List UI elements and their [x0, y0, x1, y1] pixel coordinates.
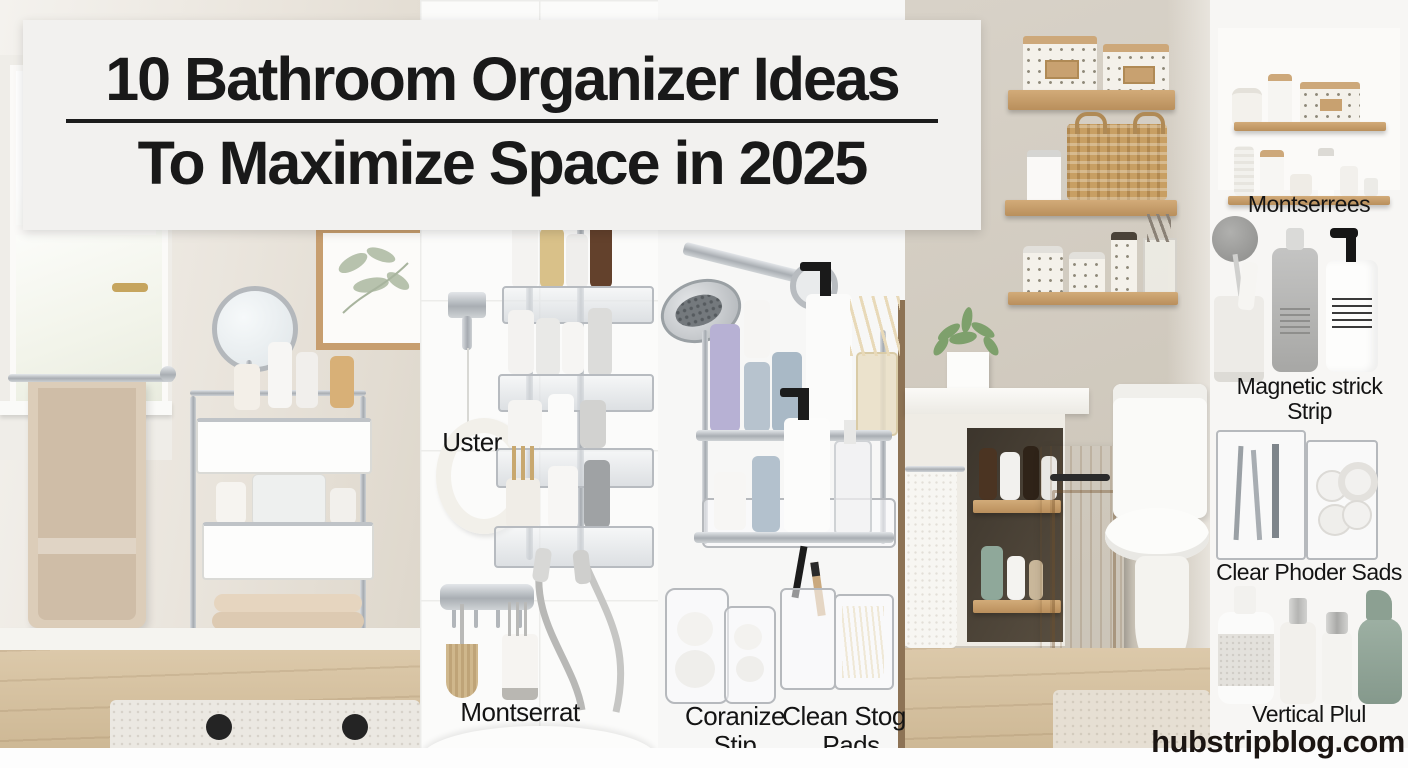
door-edge-wood [898, 300, 905, 768]
cart-wheel-left [206, 714, 232, 740]
rail-hook-2 [474, 610, 478, 628]
pump-sage [1366, 590, 1392, 620]
floating-shelf-3 [1008, 292, 1178, 305]
cotton-ball [677, 612, 713, 646]
towel-bar-endcap [160, 366, 176, 382]
floating-shelf-1 [1008, 90, 1175, 110]
bottle-gray-tall [1272, 248, 1318, 372]
pattern-bottle [1111, 232, 1137, 300]
pump-white [1234, 586, 1256, 614]
jar-wood-lid [1268, 74, 1292, 129]
eucalyptus-art [323, 233, 423, 333]
sidebar-shelf-1 [1234, 122, 1386, 131]
title-banner: 10 Bathroom Organizer Ideas To Maximize … [23, 20, 981, 230]
title-line-2: To Maximize Space in 2025 [23, 132, 981, 194]
box-label-plate [1123, 66, 1155, 84]
wall-hook [448, 292, 486, 318]
bottle-pump-white [784, 418, 830, 532]
cap-silver [1326, 612, 1348, 634]
swab-cup-clear [834, 594, 894, 690]
bottle-dark [979, 448, 997, 500]
product-sidebar: Montserrees Magnetic strick Strip [1210, 0, 1408, 768]
basket-handle [1075, 112, 1107, 134]
bottle-cap [1286, 228, 1304, 250]
hanging-towel-front [38, 388, 136, 620]
window-handle [112, 283, 148, 292]
brushes [508, 602, 532, 636]
jar-small [330, 488, 356, 524]
bottle-sage [981, 546, 1003, 600]
cotton-pad [1342, 500, 1372, 530]
towel-band [38, 538, 136, 554]
label-lines [1280, 306, 1310, 334]
jar-box [508, 400, 542, 448]
photo-label: Montserrat [430, 698, 610, 727]
bottle [548, 394, 574, 448]
glass-cup-swabs [856, 352, 898, 436]
cotton-swabs [842, 606, 884, 678]
brush-sticks [1147, 214, 1171, 242]
bottle-lavender [710, 324, 740, 432]
door-handle [1050, 474, 1110, 481]
toilet-seat [1105, 508, 1209, 562]
jar-white [714, 472, 746, 530]
bottle-white [296, 352, 318, 408]
baseboard [0, 628, 420, 650]
canister-white [1027, 150, 1061, 207]
glass-cup-brushes [1143, 238, 1177, 296]
bottle-white-pump [1000, 452, 1020, 500]
box-label-plate [1320, 99, 1342, 111]
rail-hook-3 [496, 610, 500, 628]
texture-band [1218, 634, 1274, 686]
bottle [512, 222, 538, 288]
cotton-pad-ring [1338, 462, 1378, 502]
toilet-tank [1113, 384, 1207, 518]
cabinet-towel [905, 472, 957, 648]
wall-art-frame [316, 226, 434, 350]
loofah-strap [467, 348, 469, 422]
label-lines [1332, 294, 1372, 328]
cotton-canister-small [724, 606, 776, 704]
cotton-ball [734, 624, 762, 650]
cart-tray-top [196, 418, 372, 474]
pump-white [844, 420, 856, 444]
basket-handle [1133, 112, 1165, 134]
bottle-serum-blue [752, 456, 780, 532]
organizer-box [252, 474, 326, 526]
bottle [536, 318, 560, 376]
pump-spout [800, 262, 824, 271]
rail-hook-1 [452, 610, 456, 628]
texture-bottle [1234, 146, 1254, 196]
jar-cylinder [234, 364, 260, 410]
bottle-blue-1 [744, 362, 770, 432]
bottle [562, 322, 584, 374]
jar-white [216, 482, 246, 524]
title-underline [66, 119, 938, 123]
bottle-white-pump [1326, 260, 1378, 372]
bottle [588, 308, 612, 376]
bottle-amber-dark [590, 222, 612, 288]
carton-white [548, 466, 578, 528]
towel-bar [8, 374, 174, 382]
brush-cup-clear [780, 588, 836, 690]
cotton-ball [736, 656, 764, 682]
tweezers [1234, 446, 1244, 540]
cotton-canister-large [665, 588, 729, 704]
cotton-ball [675, 650, 715, 688]
sidebar-item-label: Montserrees [1218, 192, 1400, 217]
website-url: hubstripblog.com [1148, 724, 1408, 760]
acrylic-box-tools [1216, 430, 1306, 560]
shelf-tier-2 [694, 532, 894, 543]
bottle-dropper [1280, 622, 1316, 704]
bottle [566, 234, 588, 288]
bottle-small [1322, 632, 1352, 704]
sidebar-item-label: Magnetic strick Strip [1222, 374, 1397, 425]
dropper-cap-silver [1289, 598, 1307, 624]
bottle-gray-pump [584, 460, 610, 528]
tweezers [1251, 450, 1262, 540]
title-line-1: 10 Bathroom Organizer Ideas [23, 48, 981, 110]
pin-collage: Uster [0, 0, 1408, 768]
cart-tray-middle [202, 522, 374, 580]
cart-wheel-right [342, 714, 368, 740]
storage-box-1 [1023, 36, 1097, 98]
clipper-tool [1272, 444, 1279, 538]
sidebar-item-label: Clear Phoder Sads [1210, 560, 1408, 585]
white-tool [1238, 261, 1259, 310]
bottle [508, 310, 534, 374]
wicker-basket [1067, 124, 1167, 200]
utensil-cup [506, 478, 540, 528]
bottle [540, 228, 564, 288]
product-photo-shelves [1218, 28, 1400, 190]
folded-towel-1 [214, 594, 362, 612]
acrylic-box-pads [1306, 440, 1378, 560]
cotton-swab-sticks [850, 296, 900, 356]
bottle-pump-large [806, 294, 852, 432]
vanity-countertop [905, 388, 1089, 414]
wall-hook-arm [462, 316, 472, 350]
box-label-plate [1045, 60, 1079, 79]
bottle-dark [1023, 446, 1039, 500]
pump-spout [780, 388, 802, 397]
bottle [580, 400, 606, 448]
whisk-bristles [446, 644, 478, 698]
holder-cup [1214, 296, 1264, 382]
pump-black-spout [1330, 228, 1358, 238]
bottle-amber [330, 356, 354, 408]
whisk-handle [460, 604, 464, 646]
bottle-clear-pump [834, 440, 872, 536]
bottle-pump-textured [1218, 612, 1274, 704]
bottle-white [1007, 556, 1025, 600]
bottle-white-slim [744, 300, 770, 358]
bottle-sage-pump [1358, 618, 1402, 704]
brush-cup [502, 634, 538, 700]
bottle-pump-white [268, 342, 292, 408]
wood-utensils [512, 446, 536, 480]
